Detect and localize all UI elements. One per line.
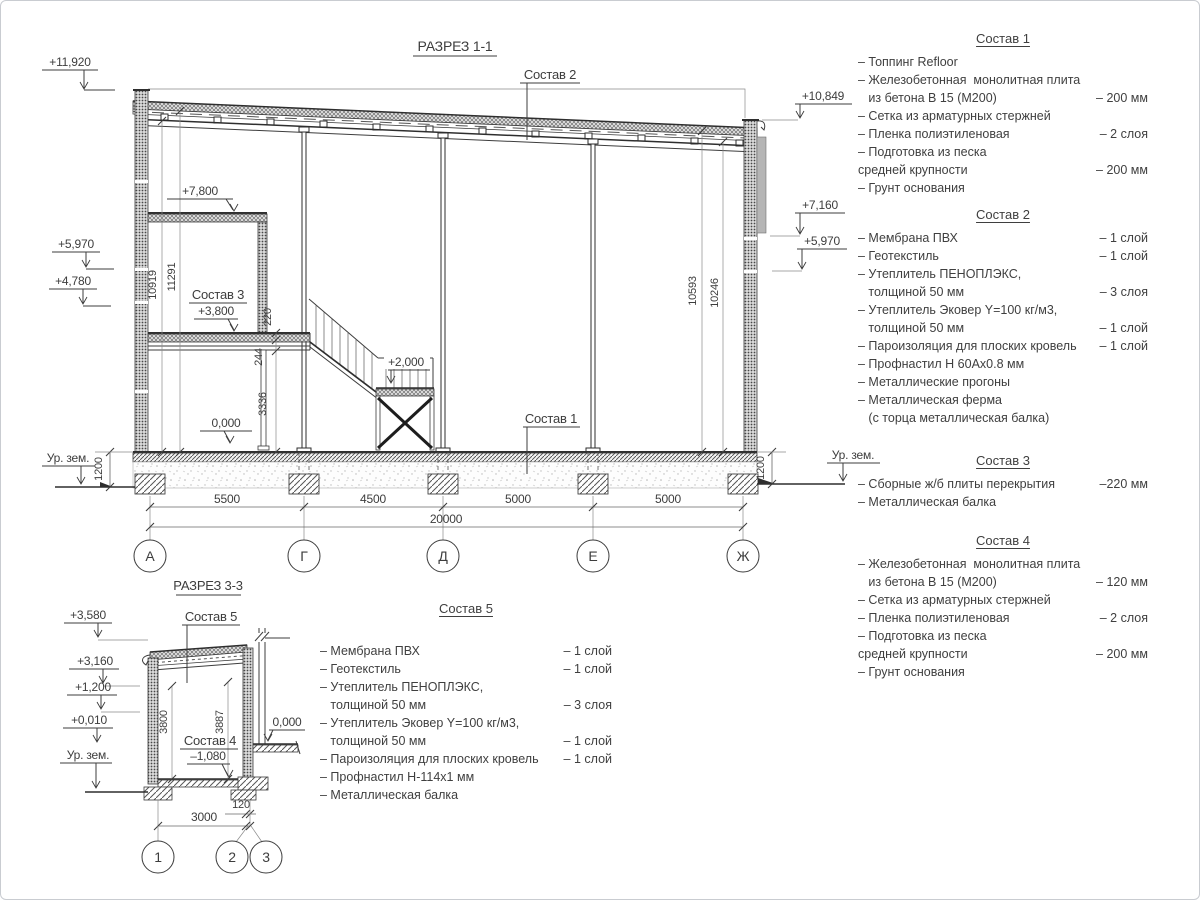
item-value: – 1 слой: [564, 660, 612, 678]
axis-markers: А Г Д Е Ж: [134, 540, 759, 572]
annex-bottom-dims: 120 3000 1 2 3: [142, 799, 282, 873]
span-dimensions: 5500 4500 5000 5000 20000: [146, 492, 747, 540]
elev-11920: +11,920: [49, 55, 91, 69]
axis-3: 3: [262, 849, 270, 865]
section3-title: РАЗРЕЗ 3-3: [173, 578, 243, 593]
composition-list-3: Состав 3 – Сборные ж/б плиты перекрытия–…: [858, 452, 1148, 511]
callout-sostav5: Состав 5: [185, 609, 237, 624]
list-item: – Пленка полиэтиленовая– 2 слоя: [858, 125, 1148, 143]
elev-0010: +0,010: [71, 713, 107, 727]
composition-list-5: Состав 5 – Мембрана ПВХ– 1 слой – Геотек…: [320, 600, 612, 804]
item-name: – Грунт основания: [858, 663, 965, 681]
axis-zh: Ж: [737, 548, 750, 564]
item-name: – Сетка из арматурных стержней: [858, 107, 1051, 125]
elev-7160: +7,160: [802, 198, 838, 212]
section1-title: РАЗРЕЗ 1-1: [418, 38, 493, 54]
stair-stringer: [310, 342, 380, 395]
item-name: – Утеплитель ПЕНОПЛЭКС, толщиной 50 мм: [858, 265, 1021, 301]
list-item: – Пароизоляция для плоских кровель– 1 сл…: [320, 750, 612, 768]
item-name: – Сборные ж/б плиты перекрытия: [858, 475, 1055, 493]
list-title: Состав 3: [858, 452, 1148, 470]
item-value: – 1 слой: [564, 732, 612, 750]
dim-3887: 3887: [214, 710, 226, 734]
item-value: – 2 слоя: [1100, 125, 1148, 143]
item-name: – Утеплитель Эковер Y=100 кг/м3, толщино…: [858, 301, 1057, 337]
callout-sostav3: Состав 3: [192, 287, 244, 302]
annex-left-wall: [148, 658, 158, 784]
dim-10593: 10593: [687, 276, 699, 306]
list-title: Состав 2: [858, 206, 1148, 224]
elevation-marks-left: +11,920 +5,970 +4,780 Ур. зем.: [42, 55, 115, 484]
elev-3580: +3,580: [70, 608, 106, 622]
item-value: – 1 слой: [564, 750, 612, 768]
list-title: Состав 1: [858, 30, 1148, 48]
axis-a: А: [145, 548, 155, 564]
dim-3000: 3000: [191, 810, 217, 824]
floor-slab: [55, 452, 845, 494]
list-item: – Сборные ж/б плиты перекрытия–220 мм: [858, 475, 1148, 493]
list-title: Состав 5: [320, 600, 612, 618]
list-item: – Сетка из арматурных стержней: [858, 591, 1148, 609]
dim-5000-b: 5000: [655, 492, 681, 506]
item-name: – Сетка из арматурных стержней: [858, 591, 1051, 609]
drawing-sheet: РАЗРЕЗ 1-1: [0, 0, 1200, 900]
dim-5500: 5500: [214, 492, 240, 506]
item-value: – 2 слоя: [1100, 609, 1148, 627]
item-value: – 3 слоя: [1100, 283, 1148, 301]
list-item: – Грунт основания: [858, 179, 1148, 197]
list-item: – Железобетонная монолитная плита из бет…: [858, 555, 1148, 591]
list-item: – Пленка полиэтиленовая– 2 слоя: [858, 609, 1148, 627]
item-name: – Утеплитель ПЕНОПЛЭКС, толщиной 50 мм: [320, 678, 483, 714]
level-2000: +2,000: [388, 355, 424, 369]
axis-2: 2: [228, 849, 236, 865]
list-item: – Металлическая балка: [320, 786, 612, 804]
item-name: – Утеплитель Эковер Y=100 кг/м3, толщино…: [320, 714, 519, 750]
section-3-3: РАЗРЕЗ 3-3: [60, 578, 305, 873]
annex-right-wall: [243, 648, 253, 784]
level-3800: +3,800: [198, 304, 234, 318]
dim-120: 120: [232, 799, 250, 811]
list-item: – Утеплитель ПЕНОПЛЭКС, толщиной 50 мм– …: [858, 265, 1148, 301]
list-item: – Металлические прогоны: [858, 373, 1148, 391]
item-name: – Металлические прогоны: [858, 373, 1010, 391]
axis-1: 1: [154, 849, 162, 865]
list-item: – Утеплитель Эковер Y=100 кг/м3, толщино…: [858, 301, 1148, 337]
right-wall: [742, 120, 766, 452]
dim-11291: 11291: [166, 263, 178, 292]
item-name: – Геотекстиль: [858, 247, 939, 265]
axis-e: Е: [588, 548, 597, 564]
height-dimensions: 10919 11291 10593 10246 220 244 3336: [147, 107, 727, 456]
dim-10246: 10246: [709, 278, 721, 308]
list-item: – Железобетонная монолитная плита из бет…: [858, 71, 1148, 107]
list-item: – Металлическая ферма (с торца металличе…: [858, 391, 1148, 427]
callout-sostav2: Состав 2: [524, 67, 576, 82]
roof-assembly: [133, 101, 765, 152]
item-value: – 1 слой: [1100, 229, 1148, 247]
item-name: – Мембрана ПВХ: [858, 229, 958, 247]
item-name: – Профнастил Н-114х1 мм: [320, 768, 474, 786]
item-name: – Подготовка из песка средней крупности: [858, 143, 987, 179]
item-name: – Геотекстиль: [320, 660, 401, 678]
item-name: – Топпинг Refloor: [858, 53, 958, 71]
list-item: – Подготовка из песка средней крупности–…: [858, 627, 1148, 663]
item-name: – Железобетонная монолитная плита из бет…: [858, 555, 1080, 591]
item-value: – 200 мм: [1096, 161, 1148, 179]
list-item: – Сетка из арматурных стержней: [858, 107, 1148, 125]
stair-landing: [376, 389, 434, 396]
dim-244: 244: [253, 348, 265, 366]
list-item: – Геотекстиль– 1 слой: [858, 247, 1148, 265]
list-item: – Геотекстиль– 1 слой: [320, 660, 612, 678]
item-name: – Металлическая ферма (с торца металличе…: [858, 391, 1049, 427]
annex-elevations: +3,580 +3,160 +1,200 +0,010 Ур. зем.: [60, 608, 148, 788]
dim-5000-a: 5000: [505, 492, 531, 506]
ledge-slab: [253, 741, 300, 754]
annex-height-dims: 3800 3887: [158, 678, 232, 783]
item-name: – Пленка полиэтиленовая: [858, 609, 1010, 627]
dim-1200-left: 1200: [93, 457, 105, 481]
mezzanine: [148, 213, 310, 450]
columns: [297, 127, 600, 452]
item-value: – 3 слоя: [564, 696, 612, 714]
item-name: – Металлическая балка: [320, 786, 458, 804]
item-name: – Металлическая балка: [858, 493, 996, 511]
item-name: – Профнастил Н 60Ах0.8 мм: [858, 355, 1024, 373]
list-item: – Утеплитель Эковер Y=100 кг/м3, толщино…: [320, 714, 612, 750]
item-value: – 200 мм: [1096, 89, 1148, 107]
list-item: – Утеплитель ПЕНОПЛЭКС, толщиной 50 мм– …: [320, 678, 612, 714]
composition-list-4: Состав 4 – Железобетонная монолитная пли…: [858, 532, 1148, 681]
composition-list-1: Состав 1 – Топпинг Refloor – Железобетон…: [858, 30, 1148, 197]
level-minus-1080: –1,080: [190, 749, 226, 763]
list-title: Состав 4: [858, 532, 1148, 550]
callout-sostav1: Состав 1: [525, 411, 577, 426]
level-0000: 0,000: [211, 416, 241, 430]
item-name: – Пароизоляция для плоских кровель: [320, 750, 539, 768]
callout-sostav4: Состав 4: [184, 733, 236, 748]
list-item: – Подготовка из песка средней крупности–…: [858, 143, 1148, 179]
gutter-icon: [757, 121, 765, 130]
list-item: – Мембрана ПВХ– 1 слой: [858, 229, 1148, 247]
item-name: – Железобетонная монолитная плита из бет…: [858, 71, 1080, 107]
item-value: – 120 мм: [1096, 573, 1148, 591]
item-name: – Грунт основания: [858, 179, 965, 197]
axis-d: Д: [438, 548, 448, 564]
elev-4780: +4,780: [55, 274, 91, 288]
mezzanine-slab: [148, 334, 310, 342]
ground-label-left: Ур. зем.: [47, 451, 89, 465]
elev-5970-left: +5,970: [58, 237, 94, 251]
dim-4500: 4500: [360, 492, 386, 506]
item-value: – 1 слой: [564, 642, 612, 660]
item-value: –220 мм: [1100, 475, 1148, 493]
list-item: – Профнастил Н 60Ах0.8 мм: [858, 355, 1148, 373]
item-value: – 1 слой: [1100, 337, 1148, 355]
elev-3160: +3,160: [77, 654, 113, 668]
stairs: [309, 299, 434, 450]
item-value: – 200 мм: [1096, 645, 1148, 663]
dim-1200-right: 1200: [755, 456, 767, 480]
list-item: – Грунт основания: [858, 663, 1148, 681]
dim-3336: 3336: [257, 392, 269, 416]
item-name: – Пароизоляция для плоских кровель: [858, 337, 1077, 355]
dim-10919: 10919: [147, 270, 159, 300]
item-value: – 1 слой: [1100, 319, 1148, 337]
upper-slab: [148, 214, 267, 222]
item-name: – Пленка полиэтиленовая: [858, 125, 1010, 143]
list-item: – Профнастил Н-114х1 мм: [320, 768, 612, 786]
level-0000-annex: 0,000: [272, 715, 302, 729]
level-7800: +7,800: [182, 184, 218, 198]
item-name: – Мембрана ПВХ: [320, 642, 420, 660]
dim-220: 220: [262, 308, 274, 326]
axis-g: Г: [300, 548, 308, 564]
composition-list-2: Состав 2 – Мембрана ПВХ– 1 слой – Геотек…: [858, 206, 1148, 427]
dim-3800: 3800: [158, 710, 170, 734]
item-value: – 1 слой: [1100, 247, 1148, 265]
list-item: – Металлическая балка: [858, 493, 1148, 511]
elev-5970-right: +5,970: [804, 234, 840, 248]
elev-1200: +1,200: [75, 680, 111, 694]
annex-floor: [85, 777, 268, 800]
dim-20000: 20000: [430, 512, 463, 526]
list-item: – Топпинг Refloor: [858, 53, 1148, 71]
list-item: – Мембрана ПВХ– 1 слой: [320, 642, 612, 660]
list-item: – Пароизоляция для плоских кровель– 1 сл…: [858, 337, 1148, 355]
section-1-1: РАЗРЕЗ 1-1: [42, 38, 880, 572]
elev-10849: +10,849: [802, 89, 845, 103]
ground-label-annex: Ур. зем.: [67, 748, 109, 762]
item-name: – Подготовка из песка средней крупности: [858, 627, 987, 663]
wall-panel-gray: [757, 137, 766, 233]
